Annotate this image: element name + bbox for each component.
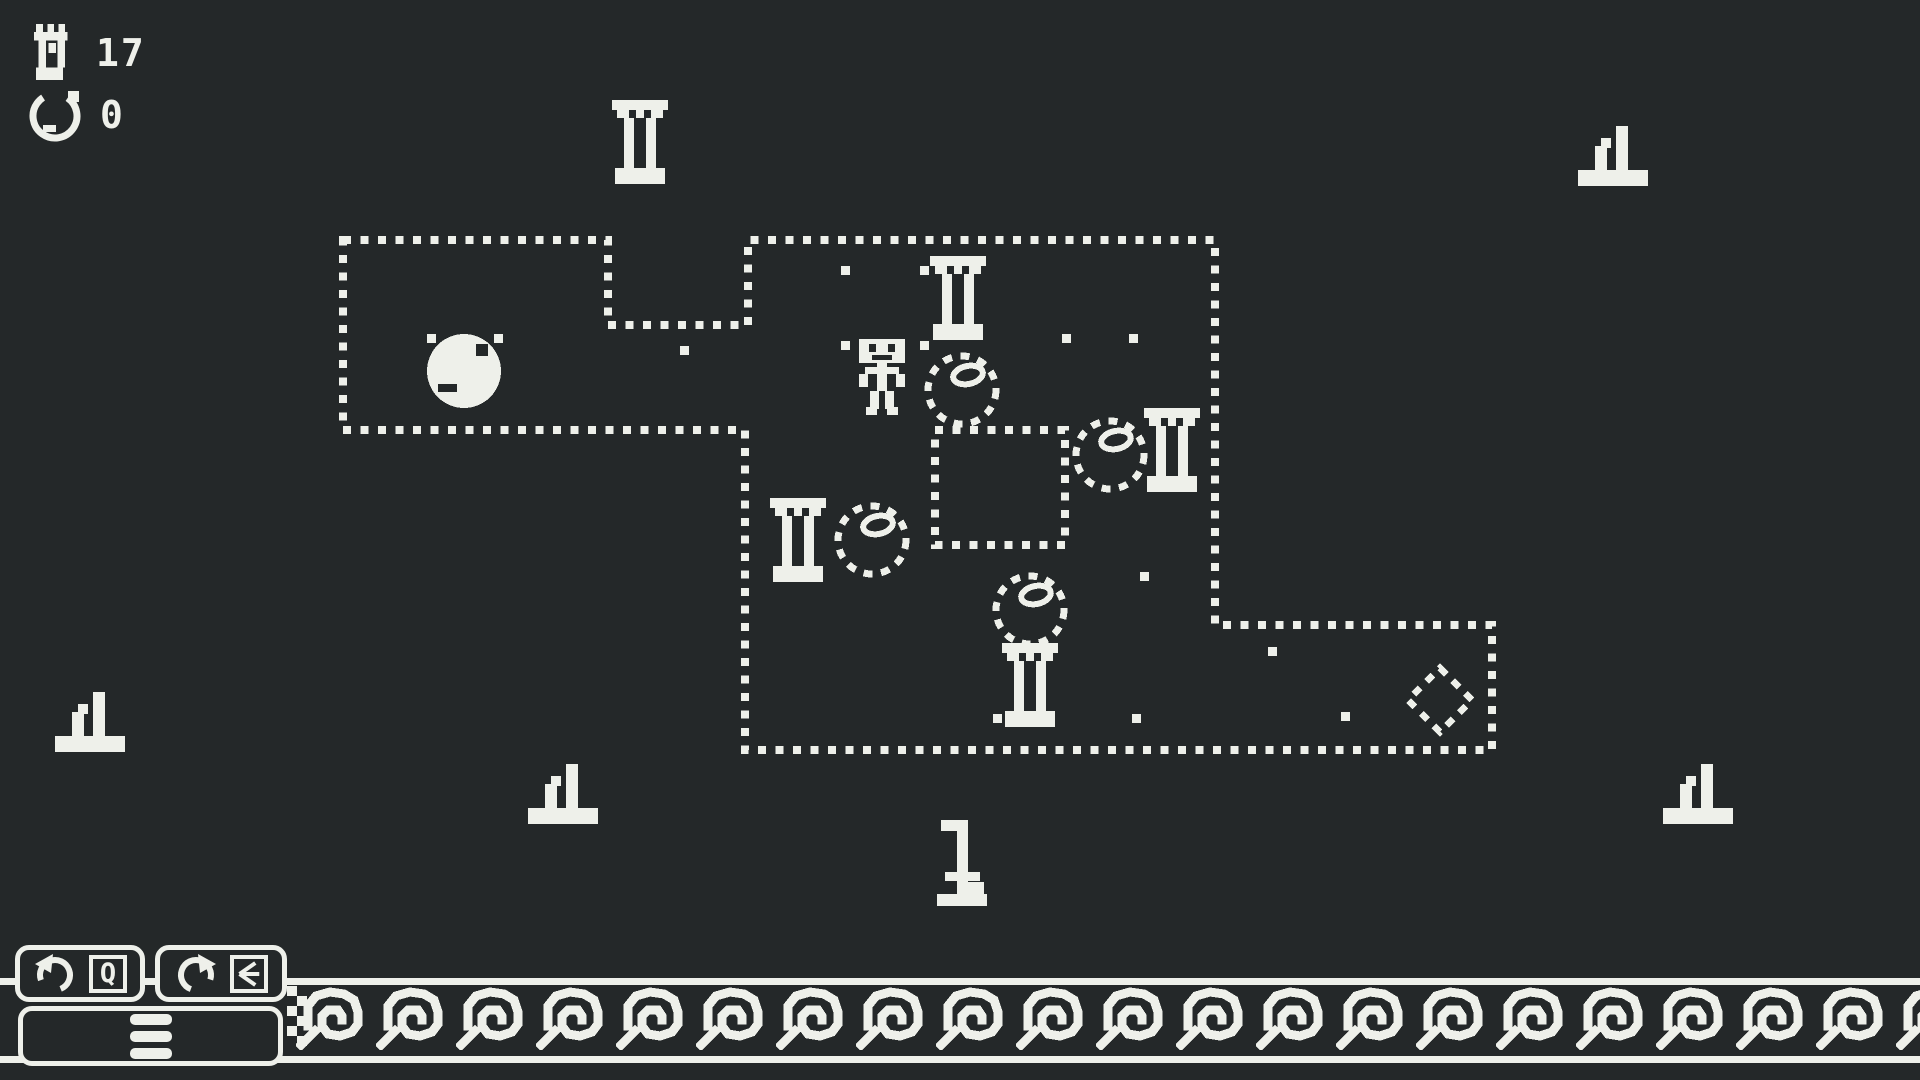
floor-dot (427, 334, 436, 343)
decoration-ruin (55, 692, 125, 752)
undo-counter: 0 (28, 84, 146, 146)
game-screen: 17 0 Q (0, 0, 1920, 1080)
game-scene (0, 0, 1920, 1080)
decoration-ruin (1578, 126, 1648, 186)
floor-dot (1062, 334, 1071, 343)
floor-dot (1341, 712, 1350, 721)
decorations (55, 100, 1733, 906)
floor-dot (1140, 572, 1149, 581)
floor-dot (993, 714, 1002, 723)
floor-dot (920, 341, 929, 350)
floor-dot (841, 341, 850, 350)
decoration-ruin (528, 764, 598, 824)
floor-dot (920, 266, 929, 275)
hamburger-icon (130, 1014, 172, 1059)
floor-dot (494, 334, 503, 343)
ball-goal (838, 506, 906, 574)
column (930, 256, 986, 340)
decoration-column (612, 100, 668, 184)
menu-button[interactable] (18, 1006, 283, 1066)
column (1144, 408, 1200, 492)
decoration-ruin (1663, 764, 1733, 824)
floor-dot (1268, 647, 1277, 656)
restart-button[interactable] (155, 945, 287, 1002)
floor-dot (1132, 714, 1141, 723)
floor-dot (680, 346, 689, 355)
steps-counter: 17 (28, 22, 146, 84)
ball-goal (1076, 421, 1144, 489)
undo-button[interactable]: Q (15, 945, 145, 1002)
level-boundary-wall (343, 240, 1492, 750)
player (859, 339, 905, 415)
foot-icon (28, 24, 80, 82)
floor-dot (1129, 334, 1138, 343)
wave-border (0, 978, 1920, 1063)
boulder (427, 334, 501, 408)
column (770, 498, 826, 582)
level-hole-wall (935, 430, 1065, 545)
diamond-goal (1408, 668, 1472, 732)
decoration-ruin-tall (937, 820, 987, 906)
floor-dot (841, 266, 850, 275)
undo-value: 0 (100, 93, 125, 137)
restart-arrow-icon (174, 952, 218, 996)
hud: 17 0 (28, 22, 146, 146)
ball-goal (928, 356, 996, 424)
column (1002, 643, 1058, 727)
steps-value: 17 (96, 31, 146, 75)
ball-goal (996, 576, 1064, 644)
key-hint-q: Q (89, 955, 127, 993)
back-arrow-key-icon (230, 955, 268, 993)
undo-arrow-icon (33, 952, 77, 996)
level (343, 240, 1492, 750)
undo-circle-icon (28, 87, 84, 143)
